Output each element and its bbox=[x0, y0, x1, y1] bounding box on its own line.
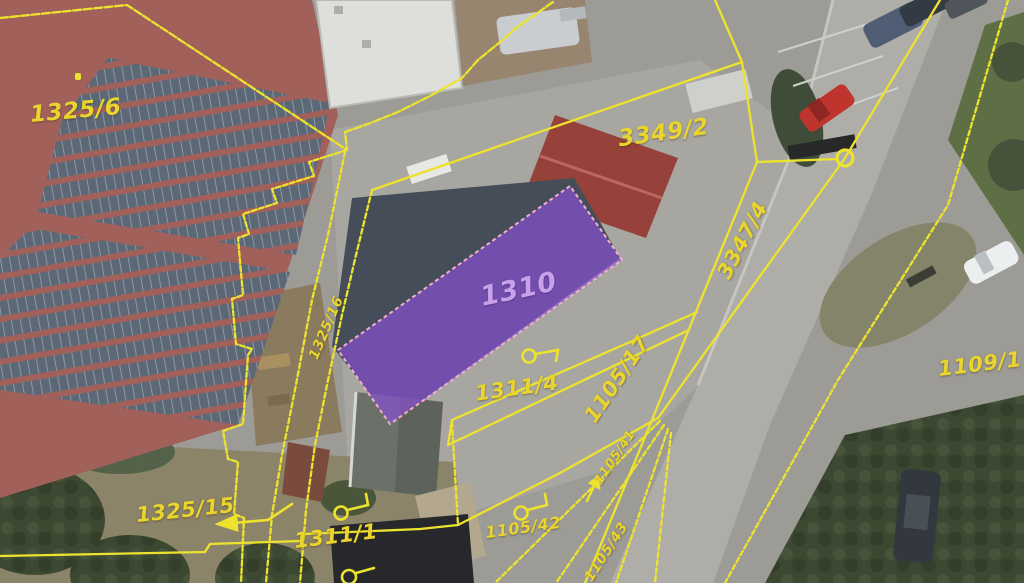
utility-symbol-tail bbox=[356, 568, 374, 573]
utility-circle-symbol bbox=[342, 570, 356, 583]
boundary-line bbox=[0, 5, 347, 150]
boundary-line bbox=[845, 0, 940, 158]
boundary-line bbox=[495, 421, 660, 583]
boundary-line bbox=[223, 150, 347, 583]
boundary-line bbox=[725, 0, 1008, 583]
map-viewport[interactable]: 1325/6 3349/2 3347/4 1310 1311/4 1105/17… bbox=[0, 0, 1024, 583]
boundary-line bbox=[345, 2, 553, 150]
utility-circle-symbol bbox=[523, 350, 536, 363]
survey-point-dot bbox=[75, 73, 81, 80]
utility-symbol-tail bbox=[348, 494, 369, 510]
boundary-line bbox=[715, 0, 837, 162]
utility-circle-symbol bbox=[335, 507, 348, 520]
utility-circle-symbol bbox=[528, 494, 548, 510]
utility-symbol-tail bbox=[536, 350, 559, 361]
boundary-line bbox=[655, 433, 671, 583]
boundary-line bbox=[0, 525, 458, 556]
boundary-line bbox=[452, 422, 458, 525]
